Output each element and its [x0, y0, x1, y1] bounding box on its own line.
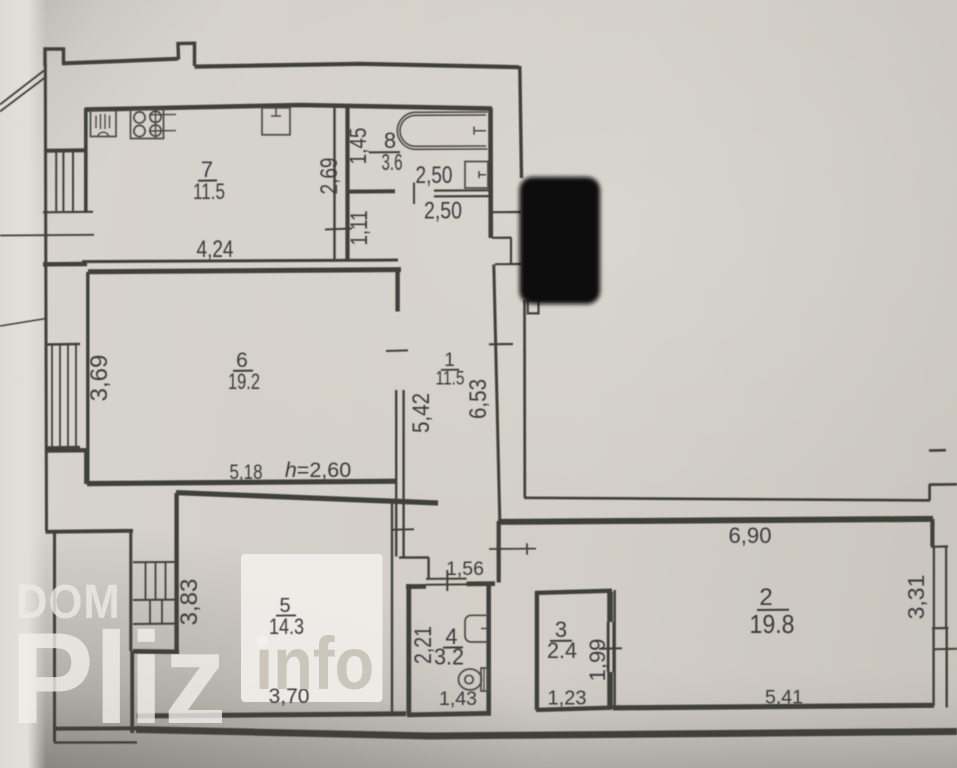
- svg-text:5,41: 5,41: [765, 687, 803, 709]
- svg-text:19.2: 19.2: [228, 369, 260, 394]
- svg-text:2,50: 2,50: [424, 198, 462, 225]
- svg-text:Pliz: Pliz: [10, 606, 227, 751]
- svg-text:19.8: 19.8: [750, 609, 795, 639]
- svg-text:2,21: 2,21: [410, 626, 437, 664]
- svg-text:1,45: 1,45: [345, 128, 372, 165]
- svg-text:1,23: 1,23: [548, 688, 587, 710]
- svg-text:3,69: 3,69: [86, 355, 113, 402]
- svg-text:2: 2: [759, 584, 772, 611]
- svg-text:2.4: 2.4: [547, 638, 577, 663]
- svg-text:3.6: 3.6: [382, 149, 403, 175]
- svg-text:2,50: 2,50: [416, 162, 453, 189]
- svg-text:5,18: 5,18: [230, 461, 263, 484]
- svg-text:1,11: 1,11: [346, 211, 373, 246]
- svg-text:4,24: 4,24: [197, 236, 234, 263]
- svg-text:1,99: 1,99: [585, 639, 610, 682]
- svg-text:1,43: 1,43: [439, 688, 477, 710]
- svg-text:3,31: 3,31: [903, 575, 929, 620]
- svg-text:11.5: 11.5: [436, 369, 465, 390]
- svg-text:3.2: 3.2: [434, 644, 464, 670]
- svg-text:11.5: 11.5: [193, 179, 225, 204]
- svg-text:ınfo: ınfo: [255, 622, 374, 705]
- svg-text:h=2,60: h=2,60: [285, 458, 351, 482]
- svg-text:5,42: 5,42: [408, 393, 435, 433]
- svg-text:1,56: 1,56: [446, 558, 484, 580]
- svg-text:2,69: 2,69: [316, 158, 343, 195]
- svg-text:6,90: 6,90: [729, 523, 772, 548]
- svg-text:6,53: 6,53: [465, 379, 492, 419]
